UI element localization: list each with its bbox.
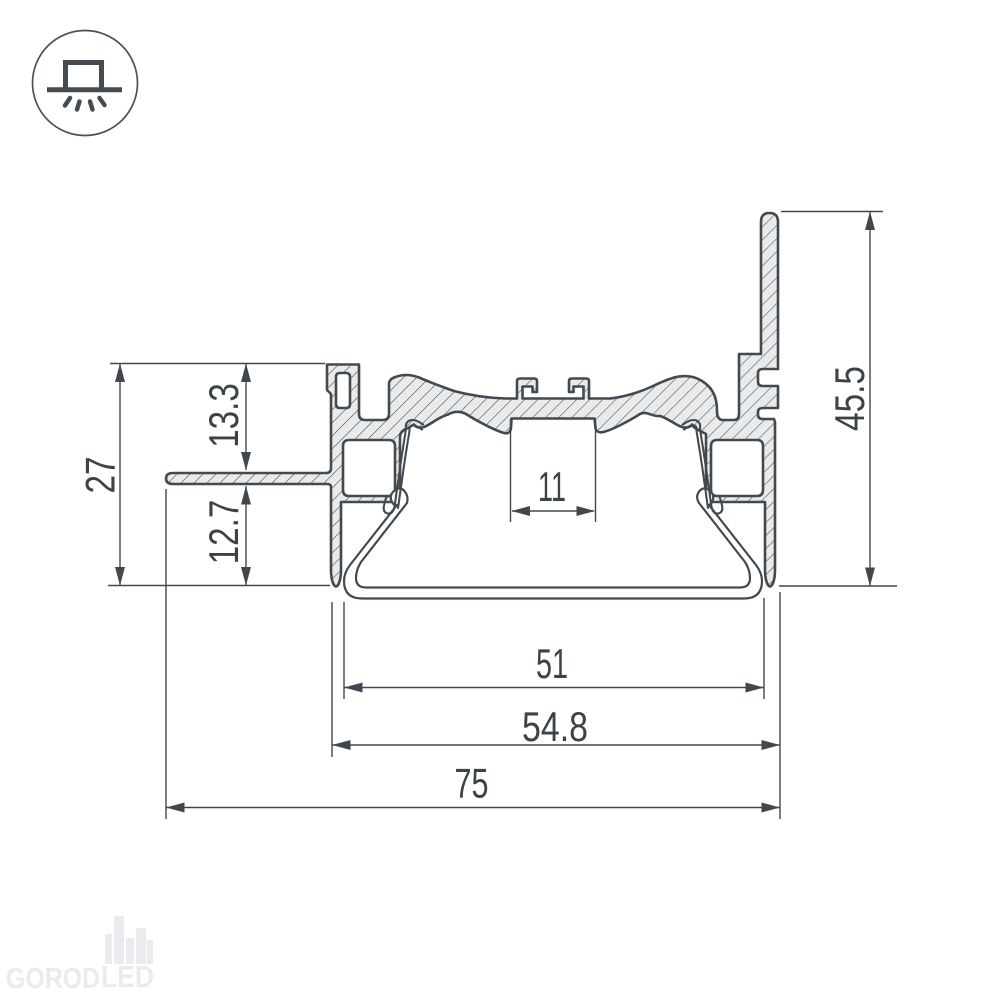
- svg-text:11: 11: [538, 463, 566, 510]
- svg-text:13.3: 13.3: [200, 383, 247, 448]
- svg-text:51: 51: [536, 640, 568, 687]
- svg-text:45.5: 45.5: [826, 366, 873, 431]
- svg-text:27: 27: [77, 457, 124, 494]
- svg-text:54.8: 54.8: [522, 703, 588, 750]
- svg-text:GOROD: GOROD: [6, 963, 100, 995]
- svg-text:LED: LED: [101, 959, 154, 994]
- svg-text:12.7: 12.7: [200, 500, 247, 565]
- svg-text:75: 75: [455, 760, 489, 807]
